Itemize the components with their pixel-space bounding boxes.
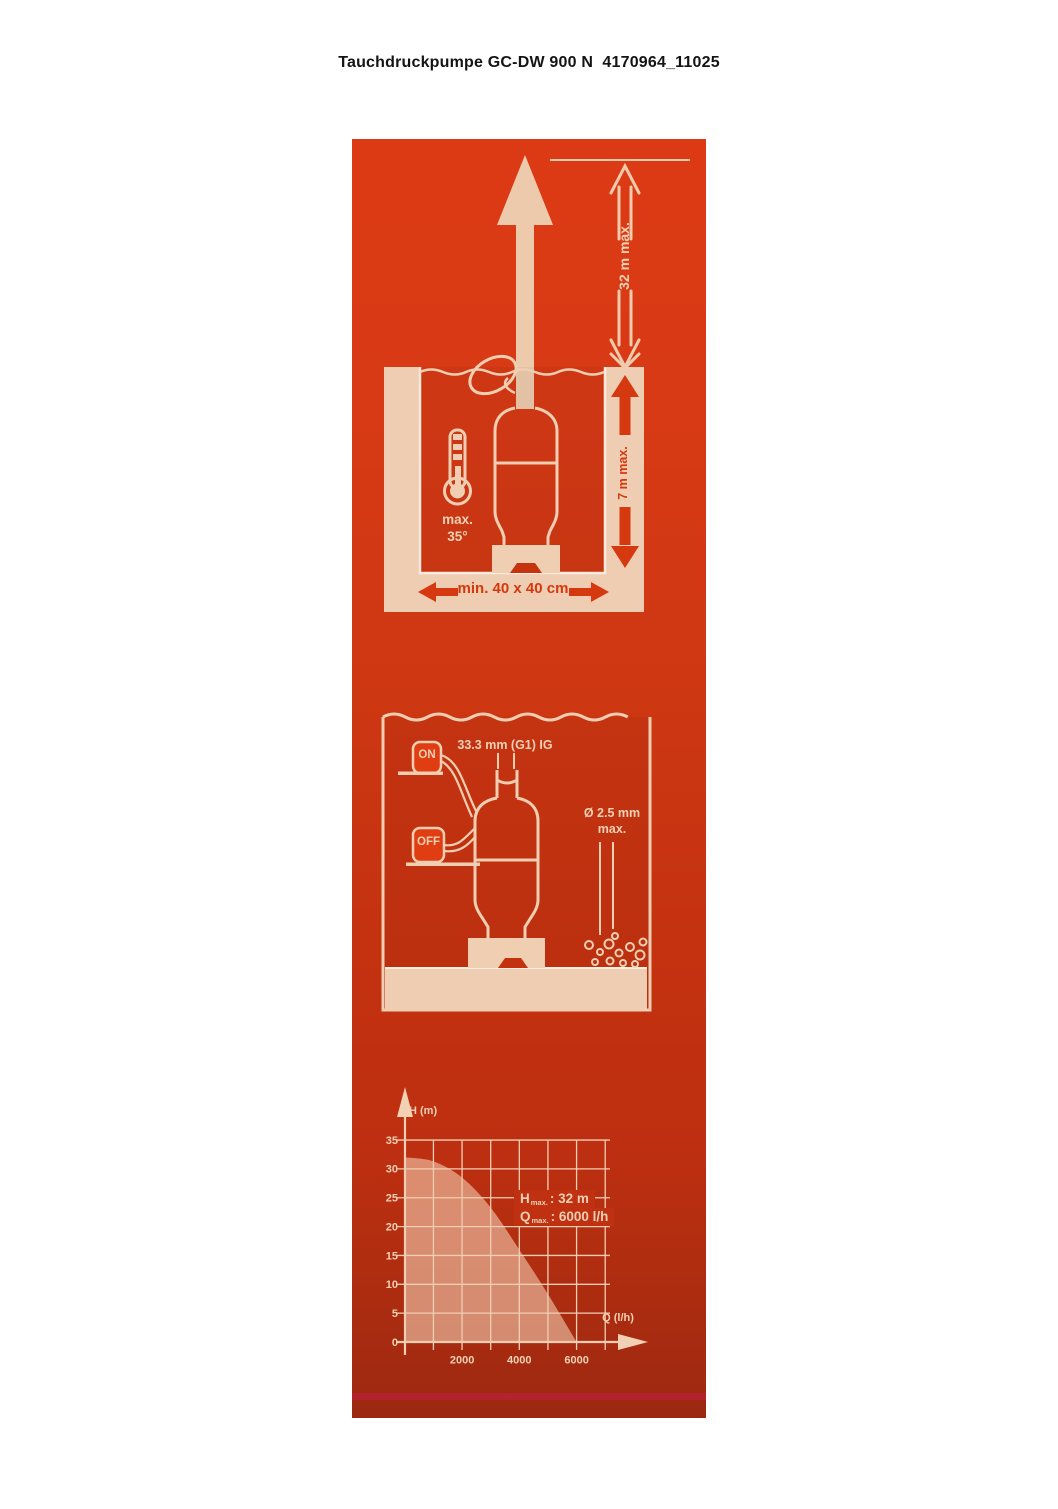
y-tick-label: 30 — [386, 1164, 398, 1176]
tank-floor — [385, 968, 647, 1009]
y-tick-label: 10 — [386, 1279, 398, 1291]
y-axis-label: H (m) — [409, 1105, 437, 1117]
infographic-svg: 35302520151050200040006000 — [352, 139, 706, 1418]
footer-accent-strip — [352, 1393, 706, 1400]
depth-max-label: 7 m max. — [616, 418, 632, 528]
x-axis-label: Q (l/h) — [587, 1312, 649, 1324]
performance-chart: 35302520151050200040006000 — [386, 1087, 648, 1367]
on-level-line — [398, 772, 443, 776]
q-max-sub: max. — [532, 1216, 549, 1225]
product-infographic-panel: 35302520151050200040006000 32 m max. 7 m… — [352, 139, 706, 1418]
temp-value-label: 35° — [424, 529, 491, 544]
page-title: Tauchdruckpumpe GC-DW 900 N 4170964_1102… — [0, 54, 1058, 72]
h-max-symbol: H — [520, 1191, 530, 1206]
particle-diameter-label: Ø 2.5 mm — [562, 806, 662, 820]
particle-max-label: max. — [562, 822, 662, 836]
h-max-annotation: Hmax.: 32 m — [514, 1190, 595, 1208]
y-tick-label: 5 — [392, 1308, 398, 1320]
x-axis-arrow — [618, 1334, 648, 1350]
connection-label: 33.3 mm (G1) IG — [410, 738, 600, 752]
pit-min-size-label: min. 40 x 40 cm — [418, 580, 608, 597]
x-tick-label: 2000 — [450, 1355, 474, 1367]
q-max-symbol: Q — [520, 1209, 531, 1224]
off-badge-label: OFF — [413, 836, 444, 848]
h-max-sub: max. — [531, 1198, 548, 1207]
chart-annotation: Hmax.: 32 m Qmax.: 6000 l/h — [514, 1190, 614, 1226]
y-tick-label: 35 — [386, 1135, 398, 1147]
height-max-label: 32 m max. — [616, 196, 634, 316]
x-tick-label: 6000 — [564, 1355, 588, 1367]
h-max-value: : 32 m — [550, 1191, 589, 1206]
y-tick-label: 25 — [386, 1193, 398, 1205]
temp-max-label: max. — [424, 512, 491, 527]
y-tick-label: 20 — [386, 1221, 398, 1233]
y-tick-label: 15 — [386, 1250, 398, 1262]
x-tick-label: 4000 — [507, 1355, 531, 1367]
off-level-line — [406, 863, 480, 867]
q-max-annotation: Qmax.: 6000 l/h — [514, 1208, 614, 1226]
y-tick-label: 0 — [392, 1337, 398, 1349]
q-max-value: : 6000 l/h — [551, 1209, 609, 1224]
chart-plot-layer — [397, 1140, 610, 1350]
